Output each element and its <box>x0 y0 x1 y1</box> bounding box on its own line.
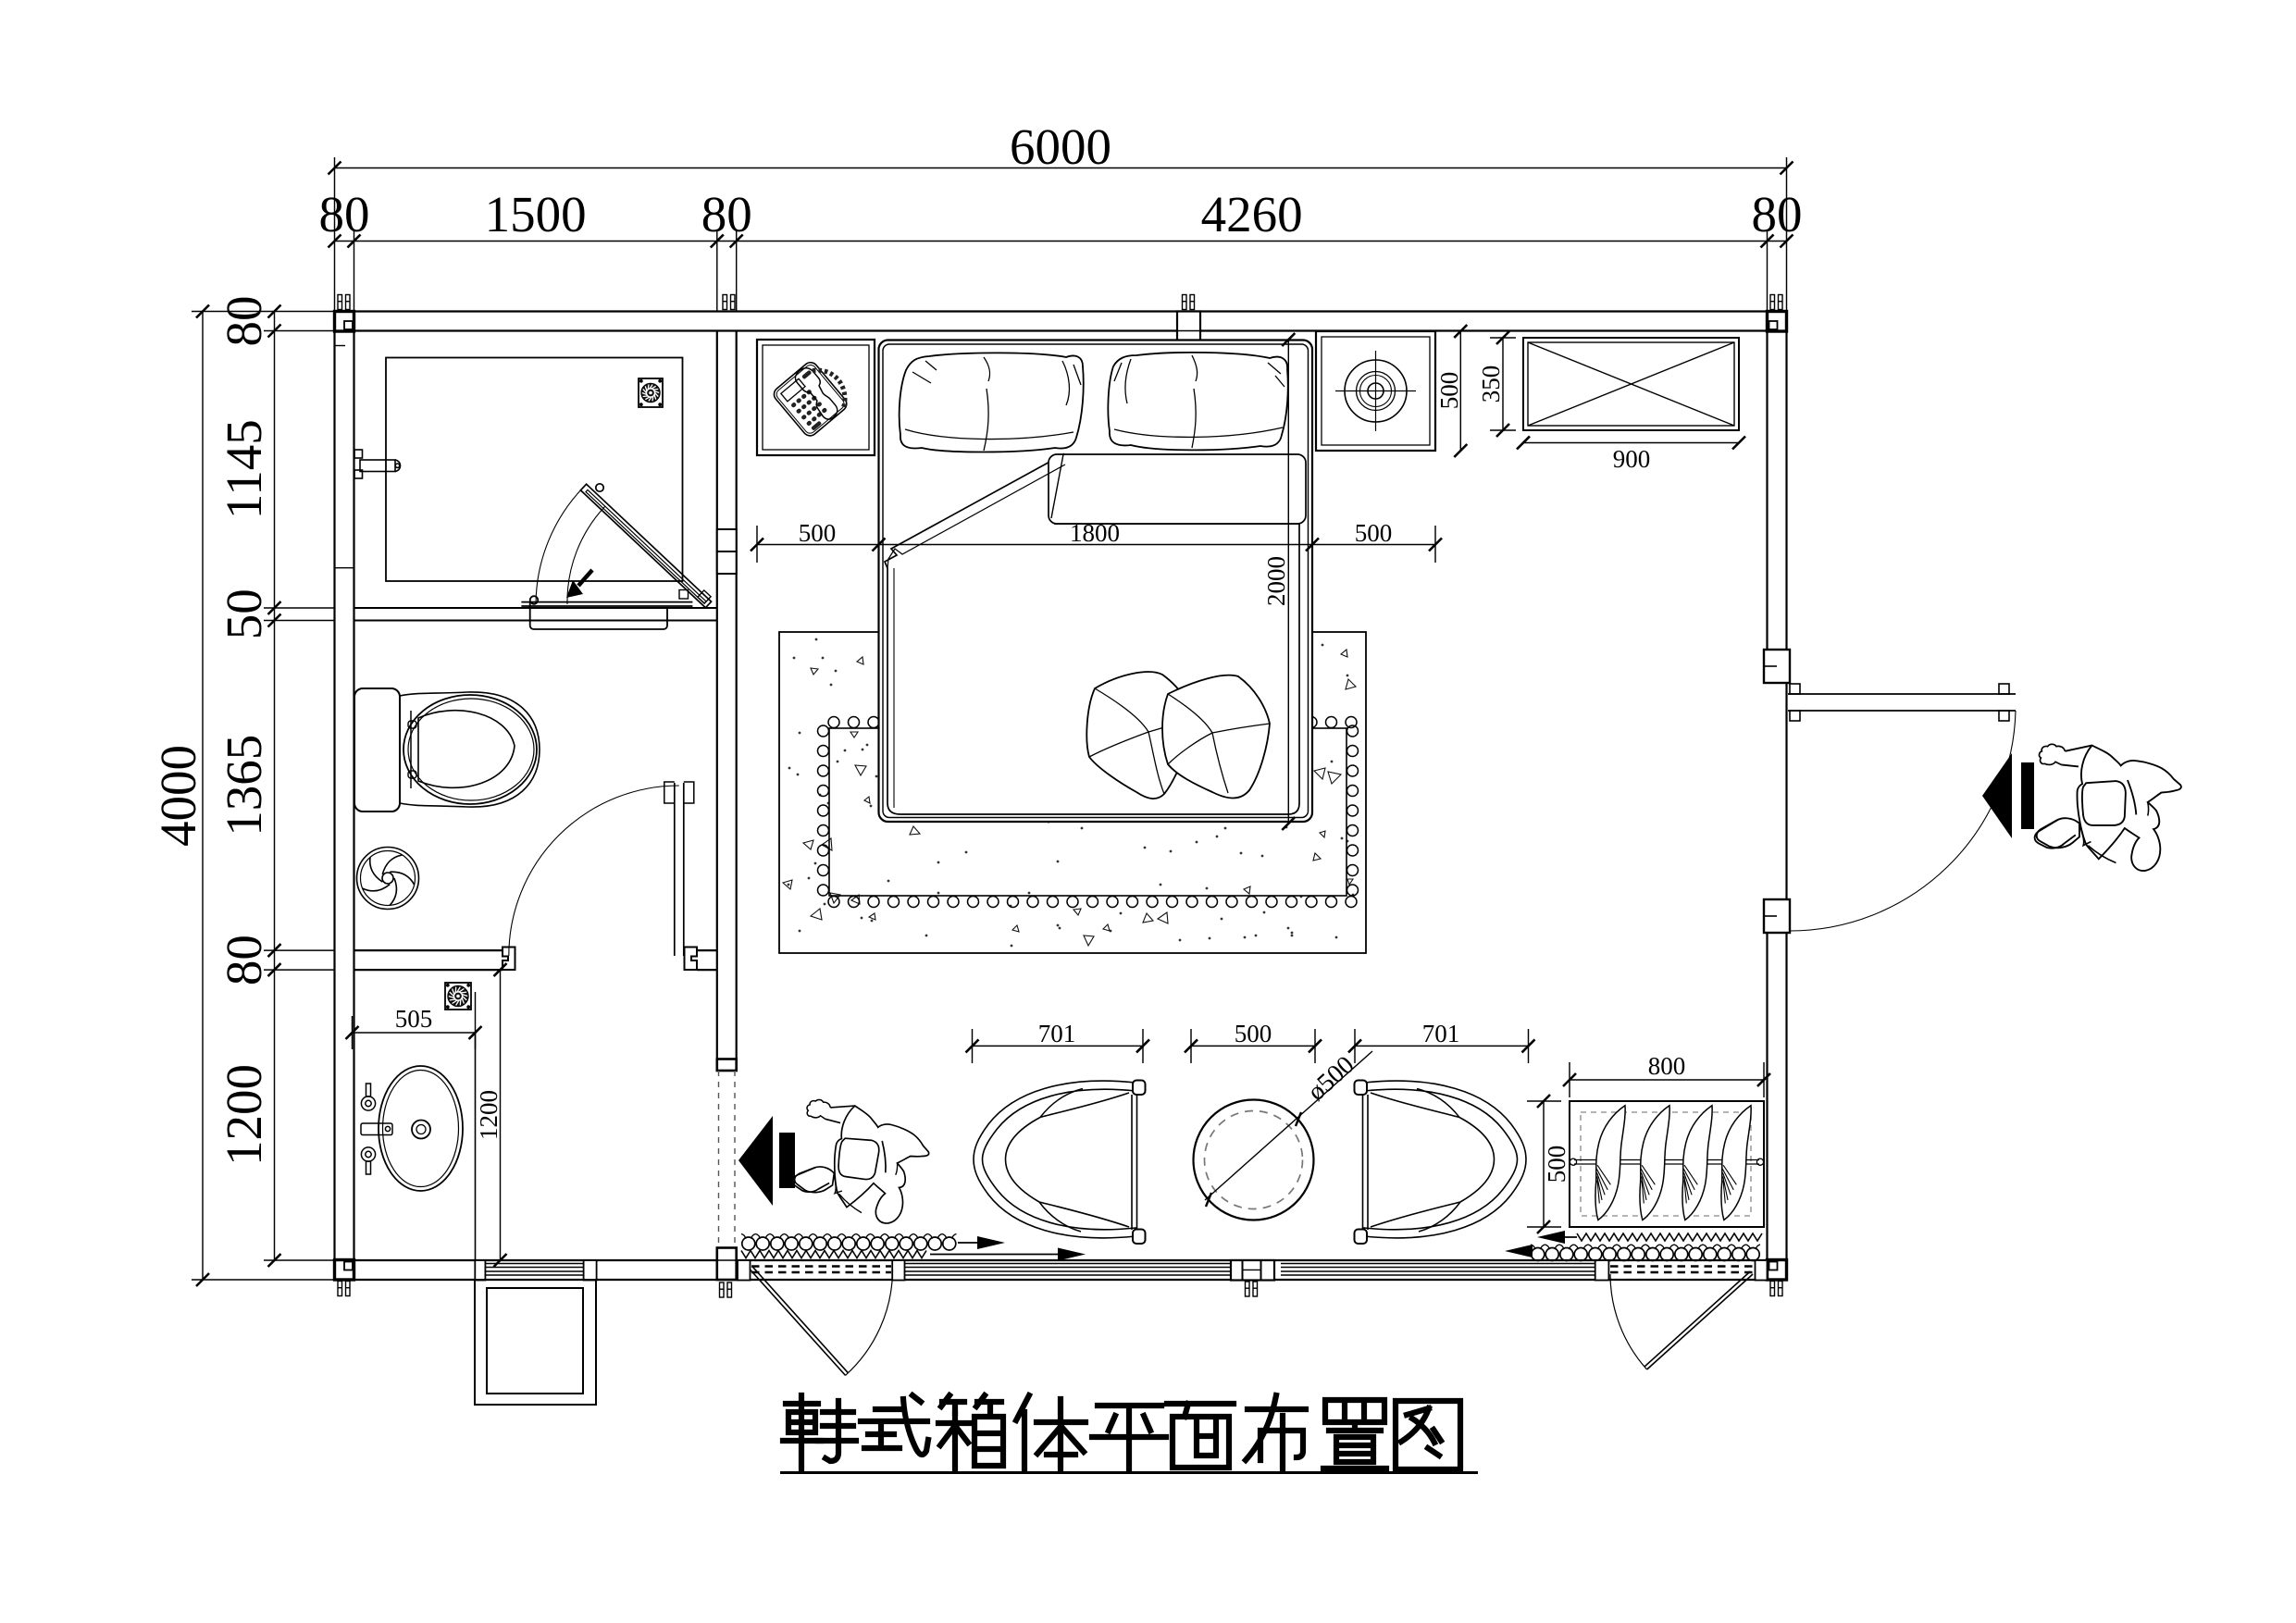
svg-text:500: 500 <box>1235 1020 1272 1047</box>
svg-text:80: 80 <box>1752 186 1803 242</box>
svg-text:4000: 4000 <box>150 745 206 847</box>
svg-text:2000: 2000 <box>1262 556 1290 606</box>
svg-text:900: 900 <box>1613 445 1651 473</box>
svg-text:1200: 1200 <box>216 1064 272 1166</box>
svg-text:800: 800 <box>1648 1052 1686 1080</box>
svg-text:4260: 4260 <box>1201 186 1303 242</box>
svg-text:701: 701 <box>1422 1020 1460 1047</box>
svg-text:80: 80 <box>216 935 272 985</box>
svg-text:500: 500 <box>1355 519 1393 547</box>
svg-text:500: 500 <box>799 519 837 547</box>
svg-text:701: 701 <box>1038 1020 1076 1047</box>
svg-text:50: 50 <box>216 588 272 639</box>
svg-text:500: 500 <box>1435 372 1463 410</box>
svg-text:505: 505 <box>395 1005 433 1033</box>
svg-text:6000: 6000 <box>1010 118 1111 175</box>
svg-text:1365: 1365 <box>216 735 272 836</box>
svg-text:1145: 1145 <box>216 419 272 519</box>
svg-text:1500: 1500 <box>485 186 587 242</box>
svg-text:350: 350 <box>1477 365 1505 403</box>
svg-text:80: 80 <box>319 186 370 242</box>
svg-text:1200: 1200 <box>475 1090 503 1140</box>
svg-text:80: 80 <box>701 186 752 242</box>
svg-text:1800: 1800 <box>1070 519 1120 547</box>
svg-text:80: 80 <box>216 296 272 347</box>
svg-text:500: 500 <box>1543 1146 1570 1183</box>
